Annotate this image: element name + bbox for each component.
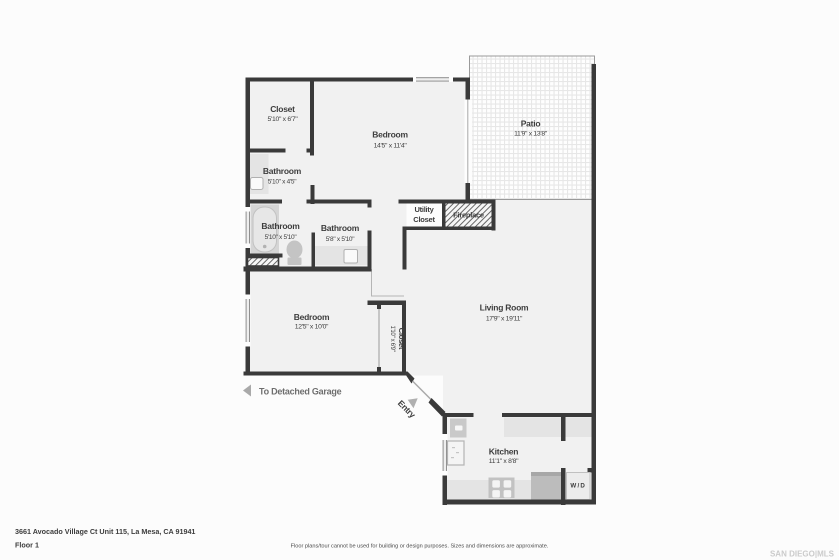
svg-text:11'9" x 13'8": 11'9" x 13'8" [514, 131, 548, 138]
svg-text:Living Room: Living Room [480, 303, 529, 313]
svg-text:Closet: Closet [413, 215, 435, 224]
svg-text:Fireplace: Fireplace [453, 211, 484, 220]
svg-text:5'10" x 4'5": 5'10" x 4'5" [268, 179, 297, 186]
svg-text:To Detached Garage: To Detached Garage [259, 387, 342, 397]
svg-text:W / D: W / D [570, 483, 585, 490]
svg-text:Kitchen: Kitchen [489, 447, 518, 457]
svg-text:Bedroom: Bedroom [294, 312, 330, 322]
svg-text:12'5" x 10'0": 12'5" x 10'0" [295, 324, 329, 331]
svg-text:Utility: Utility [414, 205, 434, 214]
svg-text:14'5" x 11'4": 14'5" x 11'4" [374, 143, 408, 150]
svg-text:Bathroom: Bathroom [263, 166, 302, 176]
svg-text:17'9" x 19'11": 17'9" x 19'11" [486, 316, 523, 323]
svg-text:Closet: Closet [270, 104, 295, 114]
svg-text:3661 Avocado Village Ct Unit 1: 3661 Avocado Village Ct Unit 115, La Mes… [15, 527, 195, 536]
svg-text:Bathroom: Bathroom [321, 223, 360, 233]
svg-text:SAN DIEGO|MLS: SAN DIEGO|MLS [770, 550, 835, 559]
svg-text:Bathroom: Bathroom [261, 221, 300, 231]
svg-text:1'10" x 6'9": 1'10" x 6'9" [389, 326, 395, 352]
svg-text:Patio: Patio [521, 119, 541, 129]
svg-text:Bedroom: Bedroom [372, 130, 408, 140]
svg-text:Floor 1: Floor 1 [15, 541, 39, 550]
svg-text:5'10" x 6'7": 5'10" x 6'7" [268, 116, 299, 123]
svg-text:5'8" x 5'10": 5'8" x 5'10" [326, 236, 355, 243]
svg-text:11'1" x 8'8": 11'1" x 8'8" [489, 458, 519, 465]
svg-text:Floor plans/tour cannot be use: Floor plans/tour cannot be used for buil… [291, 544, 549, 550]
svg-text:Closet: Closet [397, 328, 406, 350]
svg-text:5'10" x 5'10": 5'10" x 5'10" [265, 234, 298, 241]
